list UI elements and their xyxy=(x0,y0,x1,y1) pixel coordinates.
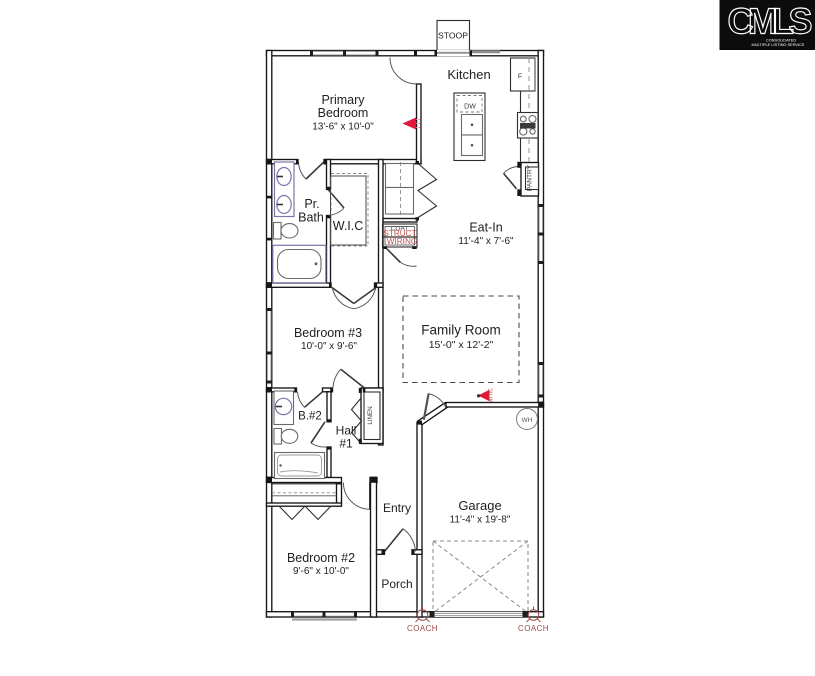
svg-text:#1: #1 xyxy=(339,437,353,451)
svg-text:Primary: Primary xyxy=(321,93,365,107)
svg-text:DW: DW xyxy=(464,104,476,111)
svg-text:11'-4" x 7'-6": 11'-4" x 7'-6" xyxy=(458,236,514,247)
svg-text:B.#2: B.#2 xyxy=(298,411,322,423)
svg-text:WH: WH xyxy=(522,417,533,424)
svg-text:Bedroom #3: Bedroom #3 xyxy=(294,326,362,340)
svg-text:15'-0" x 12'-2": 15'-0" x 12'-2" xyxy=(429,339,494,351)
svg-text:COACH: COACH xyxy=(407,624,438,633)
svg-text:Garage: Garage xyxy=(458,498,501,513)
svg-text:PANTRY: PANTRY xyxy=(527,164,534,191)
svg-text:F: F xyxy=(518,74,522,81)
svg-text:LINEN: LINEN xyxy=(367,406,374,424)
svg-text:Bedroom #2: Bedroom #2 xyxy=(287,551,355,565)
svg-text:ATTIC: ATTIC xyxy=(489,388,495,402)
svg-text:STOOP: STOOP xyxy=(438,31,468,41)
svg-text:11'-4" x 19'-8": 11'-4" x 19'-8" xyxy=(450,515,511,526)
svg-text:Entry: Entry xyxy=(383,501,411,515)
svg-text:WIRING: WIRING xyxy=(387,237,417,246)
svg-text:Kitchen: Kitchen xyxy=(447,67,490,82)
svg-text:13'-6" x 10'-0": 13'-6" x 10'-0" xyxy=(312,122,374,133)
svg-text:COACH: COACH xyxy=(518,624,549,633)
svg-text:W.I.C: W.I.C xyxy=(333,219,364,233)
svg-text:10'-0" x 9'-6": 10'-0" x 9'-6" xyxy=(301,341,357,352)
svg-text:MULTIPLE LISTING SERVICE: MULTIPLE LISTING SERVICE xyxy=(751,42,804,47)
svg-text:CMLS: CMLS xyxy=(728,1,813,42)
svg-text:Hall: Hall xyxy=(336,424,357,438)
svg-text:Bath: Bath xyxy=(298,211,324,225)
svg-text:Bedroom: Bedroom xyxy=(318,106,369,120)
svg-text:Pr.: Pr. xyxy=(304,197,319,211)
svg-text:Family Room: Family Room xyxy=(421,323,501,338)
svg-text:Eat-In: Eat-In xyxy=(469,221,502,235)
svg-text:Porch: Porch xyxy=(381,577,412,591)
svg-text:9'-6" x 10'-0": 9'-6" x 10'-0" xyxy=(293,566,349,577)
